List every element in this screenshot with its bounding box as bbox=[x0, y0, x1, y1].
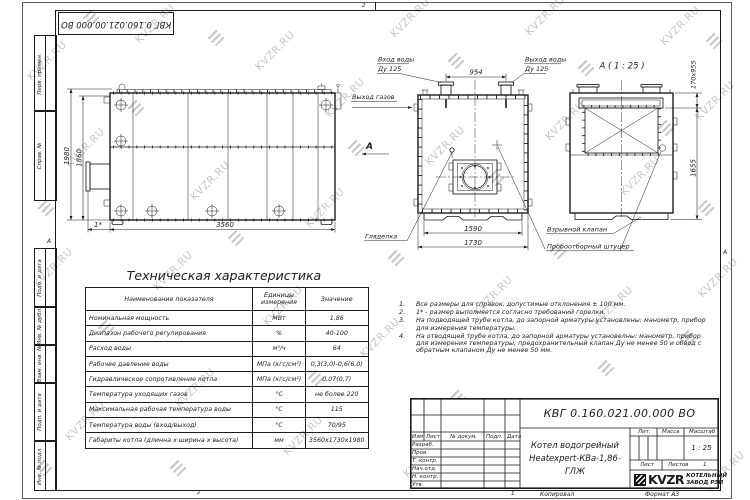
dim-170x955: 170х955 bbox=[690, 60, 698, 89]
lit-label: Лит. bbox=[638, 429, 651, 435]
sight-glass bbox=[450, 148, 454, 152]
table-row: Расход водым³/ч64 bbox=[86, 341, 369, 356]
bottom-zone-label: 2 bbox=[197, 490, 201, 496]
note-item: 2.1* - размер выполняется согласно требо… bbox=[399, 309, 709, 316]
drawing-sheet: KVZR.RUKVZR.RUKVZR.RUKVZR.RUKVZR.RUKVZR.… bbox=[0, 0, 750, 500]
label-water-inlet-dn: Ду 125 bbox=[377, 65, 401, 73]
col-value-header: Значение bbox=[306, 288, 369, 311]
company-logo: KVZR КОТЕЛЬНЫЙ ЗАВОД РЭП bbox=[630, 470, 719, 489]
doc-number: КВГ 0.160.021.00.000 ВО bbox=[520, 398, 719, 428]
inverted-doc-number: КВГ 0.160.021.00.000 ВО bbox=[61, 19, 171, 29]
rev-col-docnum: № докум. bbox=[450, 434, 477, 440]
tech-table: Наименование показателя Единицыизмерения… bbox=[85, 287, 369, 449]
side-view-dimensions: 1980 1860 3560 1* bbox=[63, 89, 335, 233]
dim-1860: 1860 bbox=[76, 149, 84, 167]
sheet-label: Лист bbox=[640, 462, 654, 468]
sheets-value: 1 bbox=[703, 462, 707, 468]
margin-field-podp-data-1: Подп. и дата bbox=[34, 248, 57, 308]
dim-1590: 1590 bbox=[464, 225, 482, 233]
table-row: Гидравлическое сопротивление котлаМПа (к… bbox=[86, 372, 369, 387]
a-view-dimensions: 170х955 1655 bbox=[665, 60, 702, 219]
table-row: Габариты котла (длинна х ширина х высота… bbox=[86, 433, 369, 448]
role-utv: Утв. bbox=[412, 482, 424, 488]
inverted-doc-number-stamp: КВГ 0.160.021.00.000 ВО bbox=[58, 12, 174, 35]
margin-field-inv-dubl: Инв. № дубл. bbox=[34, 306, 57, 346]
label-sampler: Пробоотборный штуцер bbox=[547, 243, 630, 251]
margin-field-vzam-inv: Взам. инв. № bbox=[34, 344, 57, 384]
label-sight-glass: Гляделка bbox=[365, 233, 397, 241]
margin-field-perv-primen: Перв. примен. bbox=[34, 35, 57, 112]
col-units-header: Единицыизмерения bbox=[253, 288, 306, 311]
dim-1-star: 1* bbox=[94, 221, 102, 229]
burner-mount-side bbox=[90, 164, 110, 189]
table-row: Максимальная рабочая температура воды°С1… bbox=[86, 402, 369, 417]
note-item: 1.Все размеры для справок, допустимые от… bbox=[399, 301, 709, 308]
col-name-header: Наименование показателя bbox=[86, 288, 253, 311]
copied-label: Копировал bbox=[540, 491, 574, 498]
company-name: КОТЕЛЬНЫЙ ЗАВОД РЭП bbox=[686, 473, 727, 486]
kvzr-logo-icon bbox=[634, 474, 646, 486]
rev-col-izm: Изм bbox=[412, 434, 423, 440]
sampler-point-mark bbox=[492, 140, 502, 150]
table-row: Температура воды (вход/выход)°С70/95 bbox=[86, 418, 369, 433]
rev-col-list: Лист bbox=[426, 434, 440, 440]
front-view: 954 1590 1730 Вход воды Ду 125 Выход вод… bbox=[351, 56, 566, 251]
a-view-labels: Взрывной клапан Пробоотборный штуцер bbox=[498, 147, 661, 251]
role-nachotd: Нач.отд. bbox=[412, 466, 437, 472]
tech-table-header-row: Наименование показателя Единицыизмерения… bbox=[86, 288, 369, 311]
product-name: Котел водогрейный Heatexpert-КВа-1,86-ГЛ… bbox=[520, 428, 630, 489]
label-water-outlet: Выход воды bbox=[525, 56, 566, 64]
rev-col-data: Дата bbox=[507, 434, 521, 440]
table-row: Температура уходящих газов°Сне более 220 bbox=[86, 387, 369, 402]
label-explosion-valve: Взрывной клапан bbox=[547, 226, 607, 234]
format-label: Формат А3 bbox=[645, 491, 679, 498]
top-zone-divider bbox=[375, 2, 376, 10]
role-tkontr: Т. контр. bbox=[412, 458, 438, 464]
tech-table-title: Техническая характеристика bbox=[85, 268, 363, 283]
notes-list: 1.Все размеры для справок, допустимые от… bbox=[399, 301, 709, 355]
margin-field-inv-podl: Инв. № подл. bbox=[34, 440, 57, 491]
kvzr-logo-text: KVZR bbox=[648, 472, 684, 487]
fold-mark-left: А bbox=[47, 238, 51, 245]
label-water-inlet: Вход воды bbox=[378, 56, 414, 64]
top-zone-label: 2 bbox=[362, 3, 366, 9]
dim-1980: 1980 bbox=[63, 147, 71, 165]
sheets-label: Листов bbox=[668, 462, 689, 468]
table-row: Номинальная мощностьМВт1,86 bbox=[86, 311, 369, 326]
title-block: Изм Лист № докум. Подп. Дата Разраб. Про… bbox=[410, 398, 719, 489]
bottom-zone-label-2: 1 bbox=[511, 491, 515, 497]
table-row: Диапазон рабочего регулирования%40-100 bbox=[86, 326, 369, 341]
a-view-title: А ( 1 : 25 ) bbox=[598, 62, 644, 72]
dim-1730: 1730 bbox=[464, 239, 482, 247]
role-nkontr: Н. контр. bbox=[412, 474, 438, 480]
dim-954: 954 bbox=[469, 69, 482, 77]
front-view-dimensions: 954 1590 1730 bbox=[418, 69, 528, 251]
margin-field-podp-data-2: Подп. и дата bbox=[34, 382, 57, 442]
scale-label: Масштаб bbox=[689, 429, 715, 435]
role-prov: Пров. bbox=[412, 450, 428, 456]
margin-field-sprav: Справ. № bbox=[34, 110, 57, 201]
dim-1655: 1655 bbox=[690, 159, 698, 177]
section-letter: А bbox=[365, 142, 373, 152]
note-item: 4.На отводящей трубе котла, до запорной … bbox=[399, 333, 709, 355]
mass-label: Масса bbox=[662, 429, 680, 435]
fold-mark-right: А bbox=[723, 249, 727, 256]
label-gas-outlet: Выход газов bbox=[352, 93, 395, 101]
table-row: Рабочее давление водыМПа (кгс/см²)0,3(3,… bbox=[86, 356, 369, 371]
role-razrab: Разраб. bbox=[412, 442, 434, 448]
note-item: 3.На подводящей трубе котла, до запорной… bbox=[399, 317, 709, 331]
side-view: 1980 1860 3560 1* bbox=[63, 84, 341, 233]
dim-3560: 3560 bbox=[216, 221, 234, 229]
rev-col-podp: Подп. bbox=[486, 434, 503, 440]
label-water-outlet-dn: Ду 125 bbox=[524, 65, 548, 73]
side-bolt-marks bbox=[114, 98, 333, 218]
scale-value: 1 : 25 bbox=[684, 436, 719, 460]
